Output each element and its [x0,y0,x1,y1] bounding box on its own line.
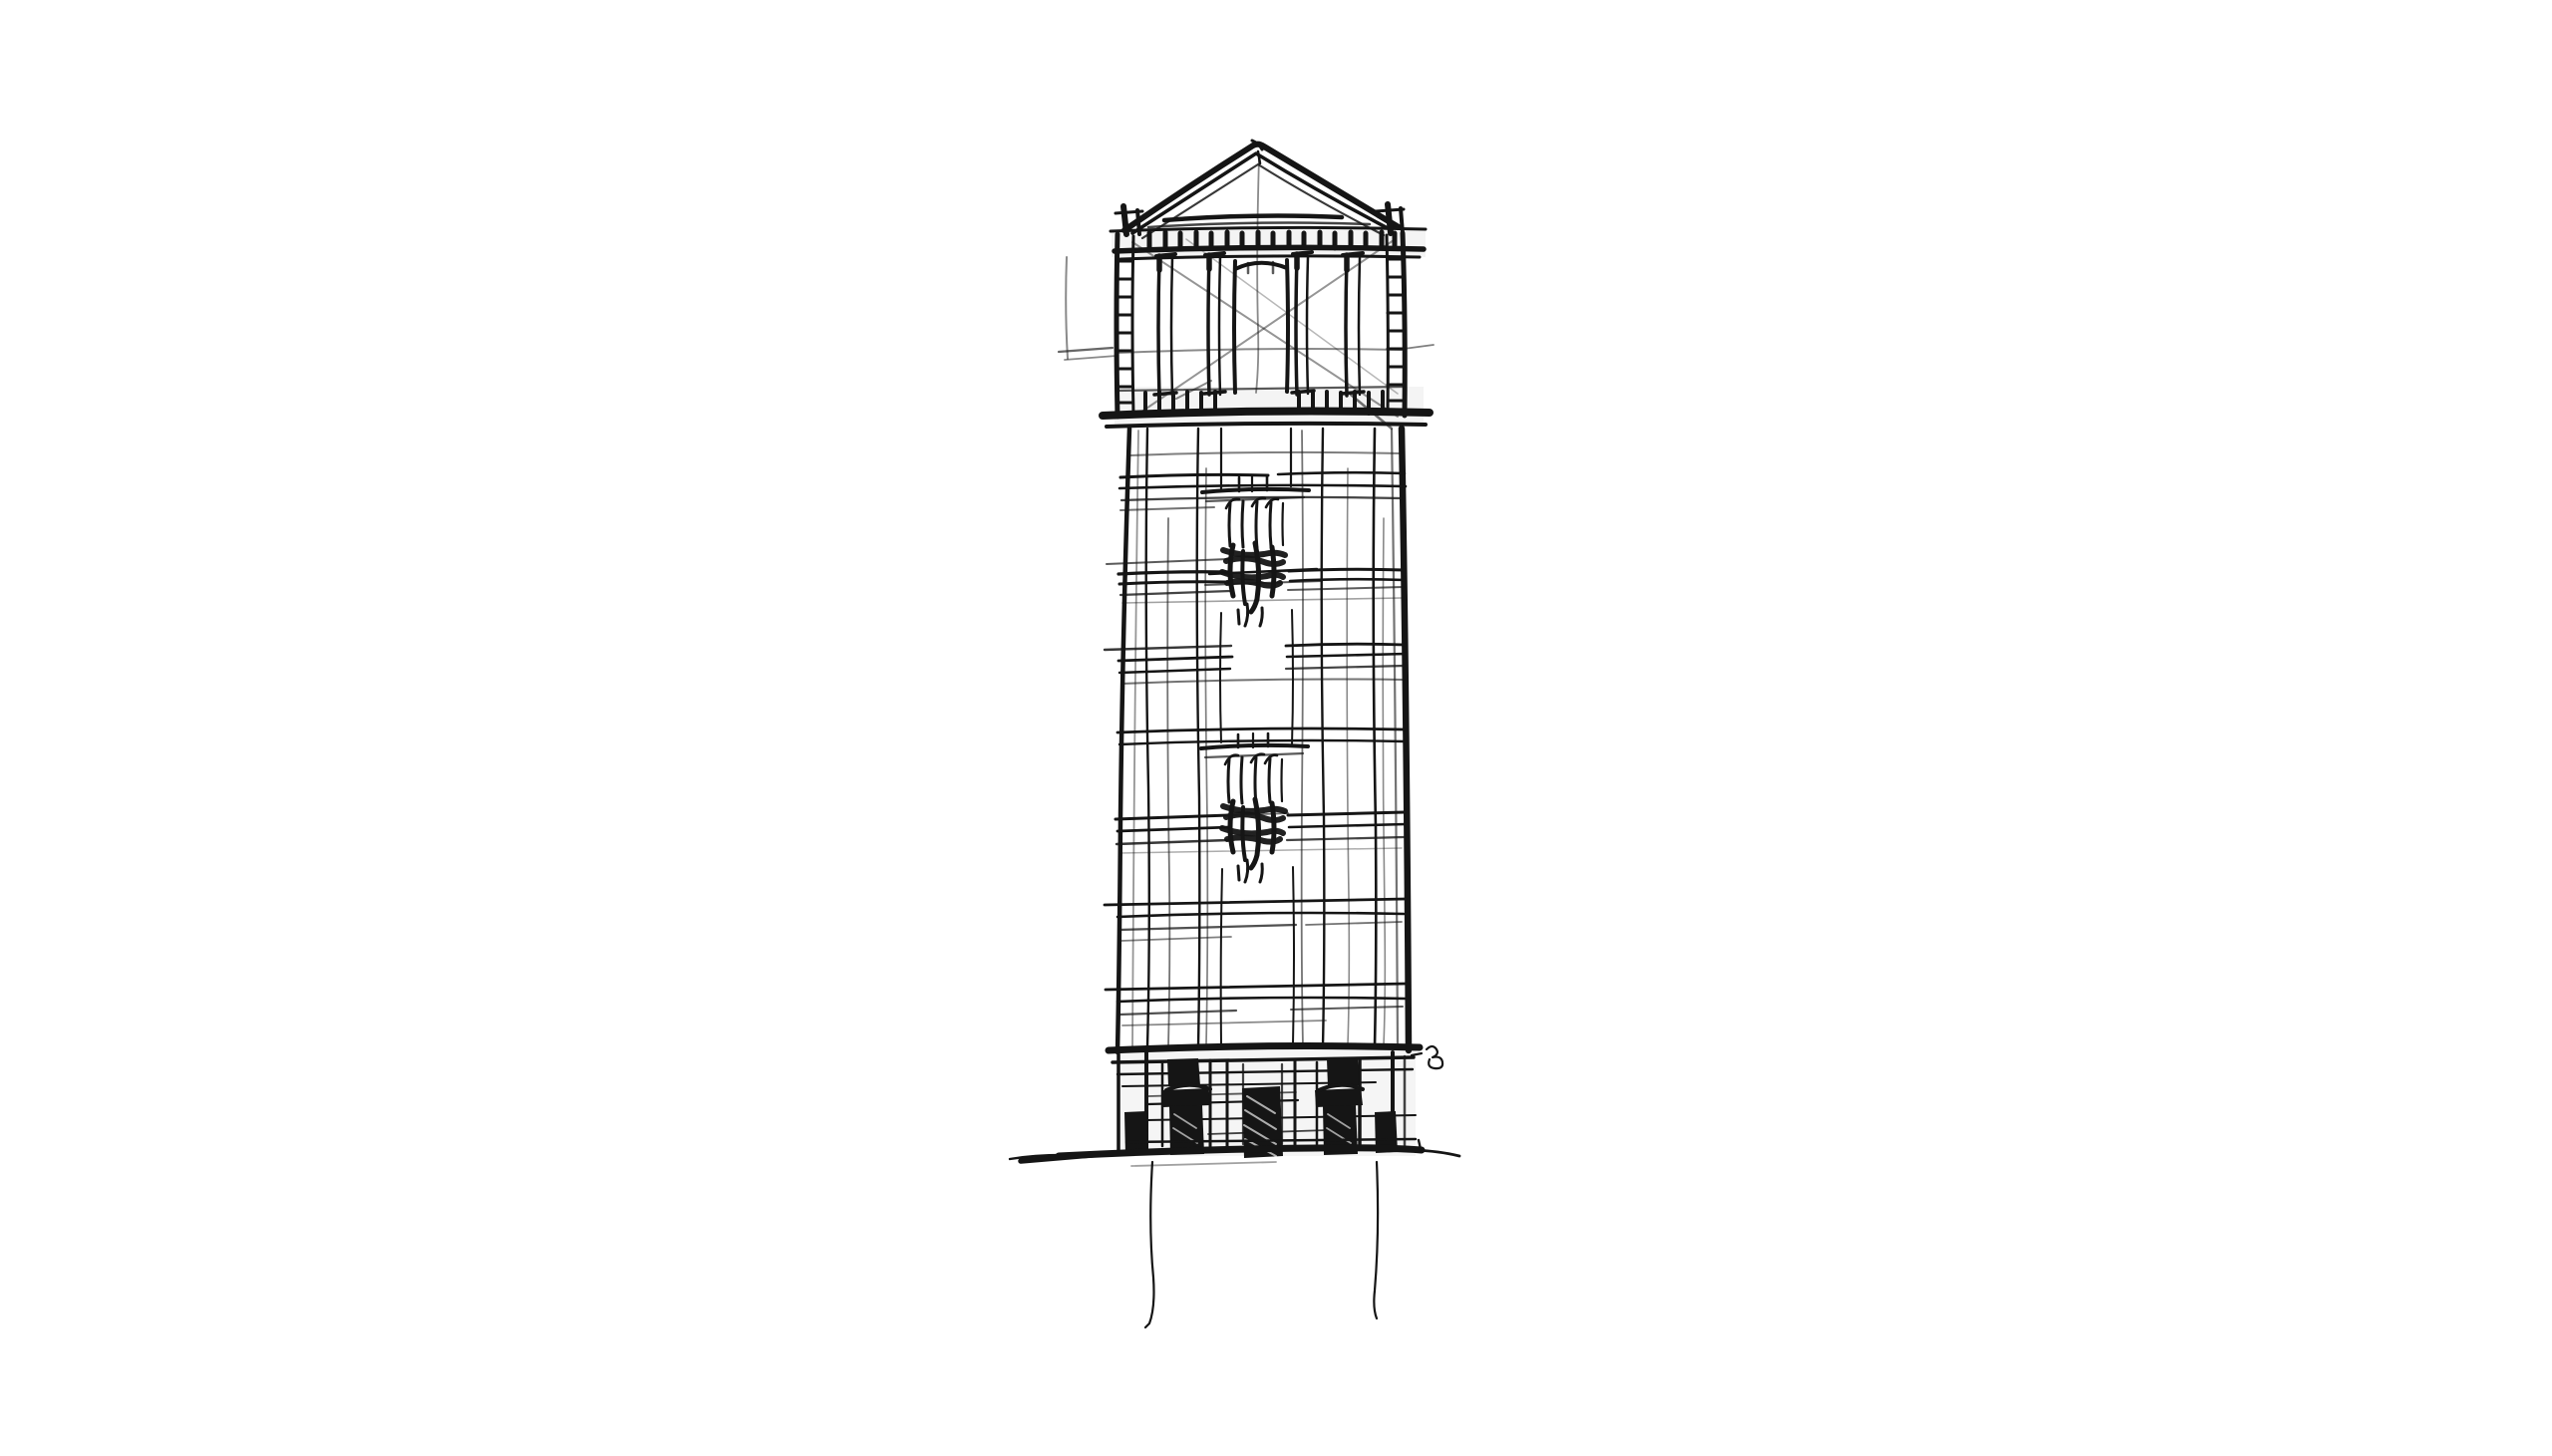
sketch-canvas: 80 [0,0,2552,1456]
window-cluster-lower [1201,733,1308,882]
pediment [1124,141,1399,393]
foundation-lines [1145,1162,1378,1327]
tower-elevation-sketch: 80 [0,0,2552,1456]
